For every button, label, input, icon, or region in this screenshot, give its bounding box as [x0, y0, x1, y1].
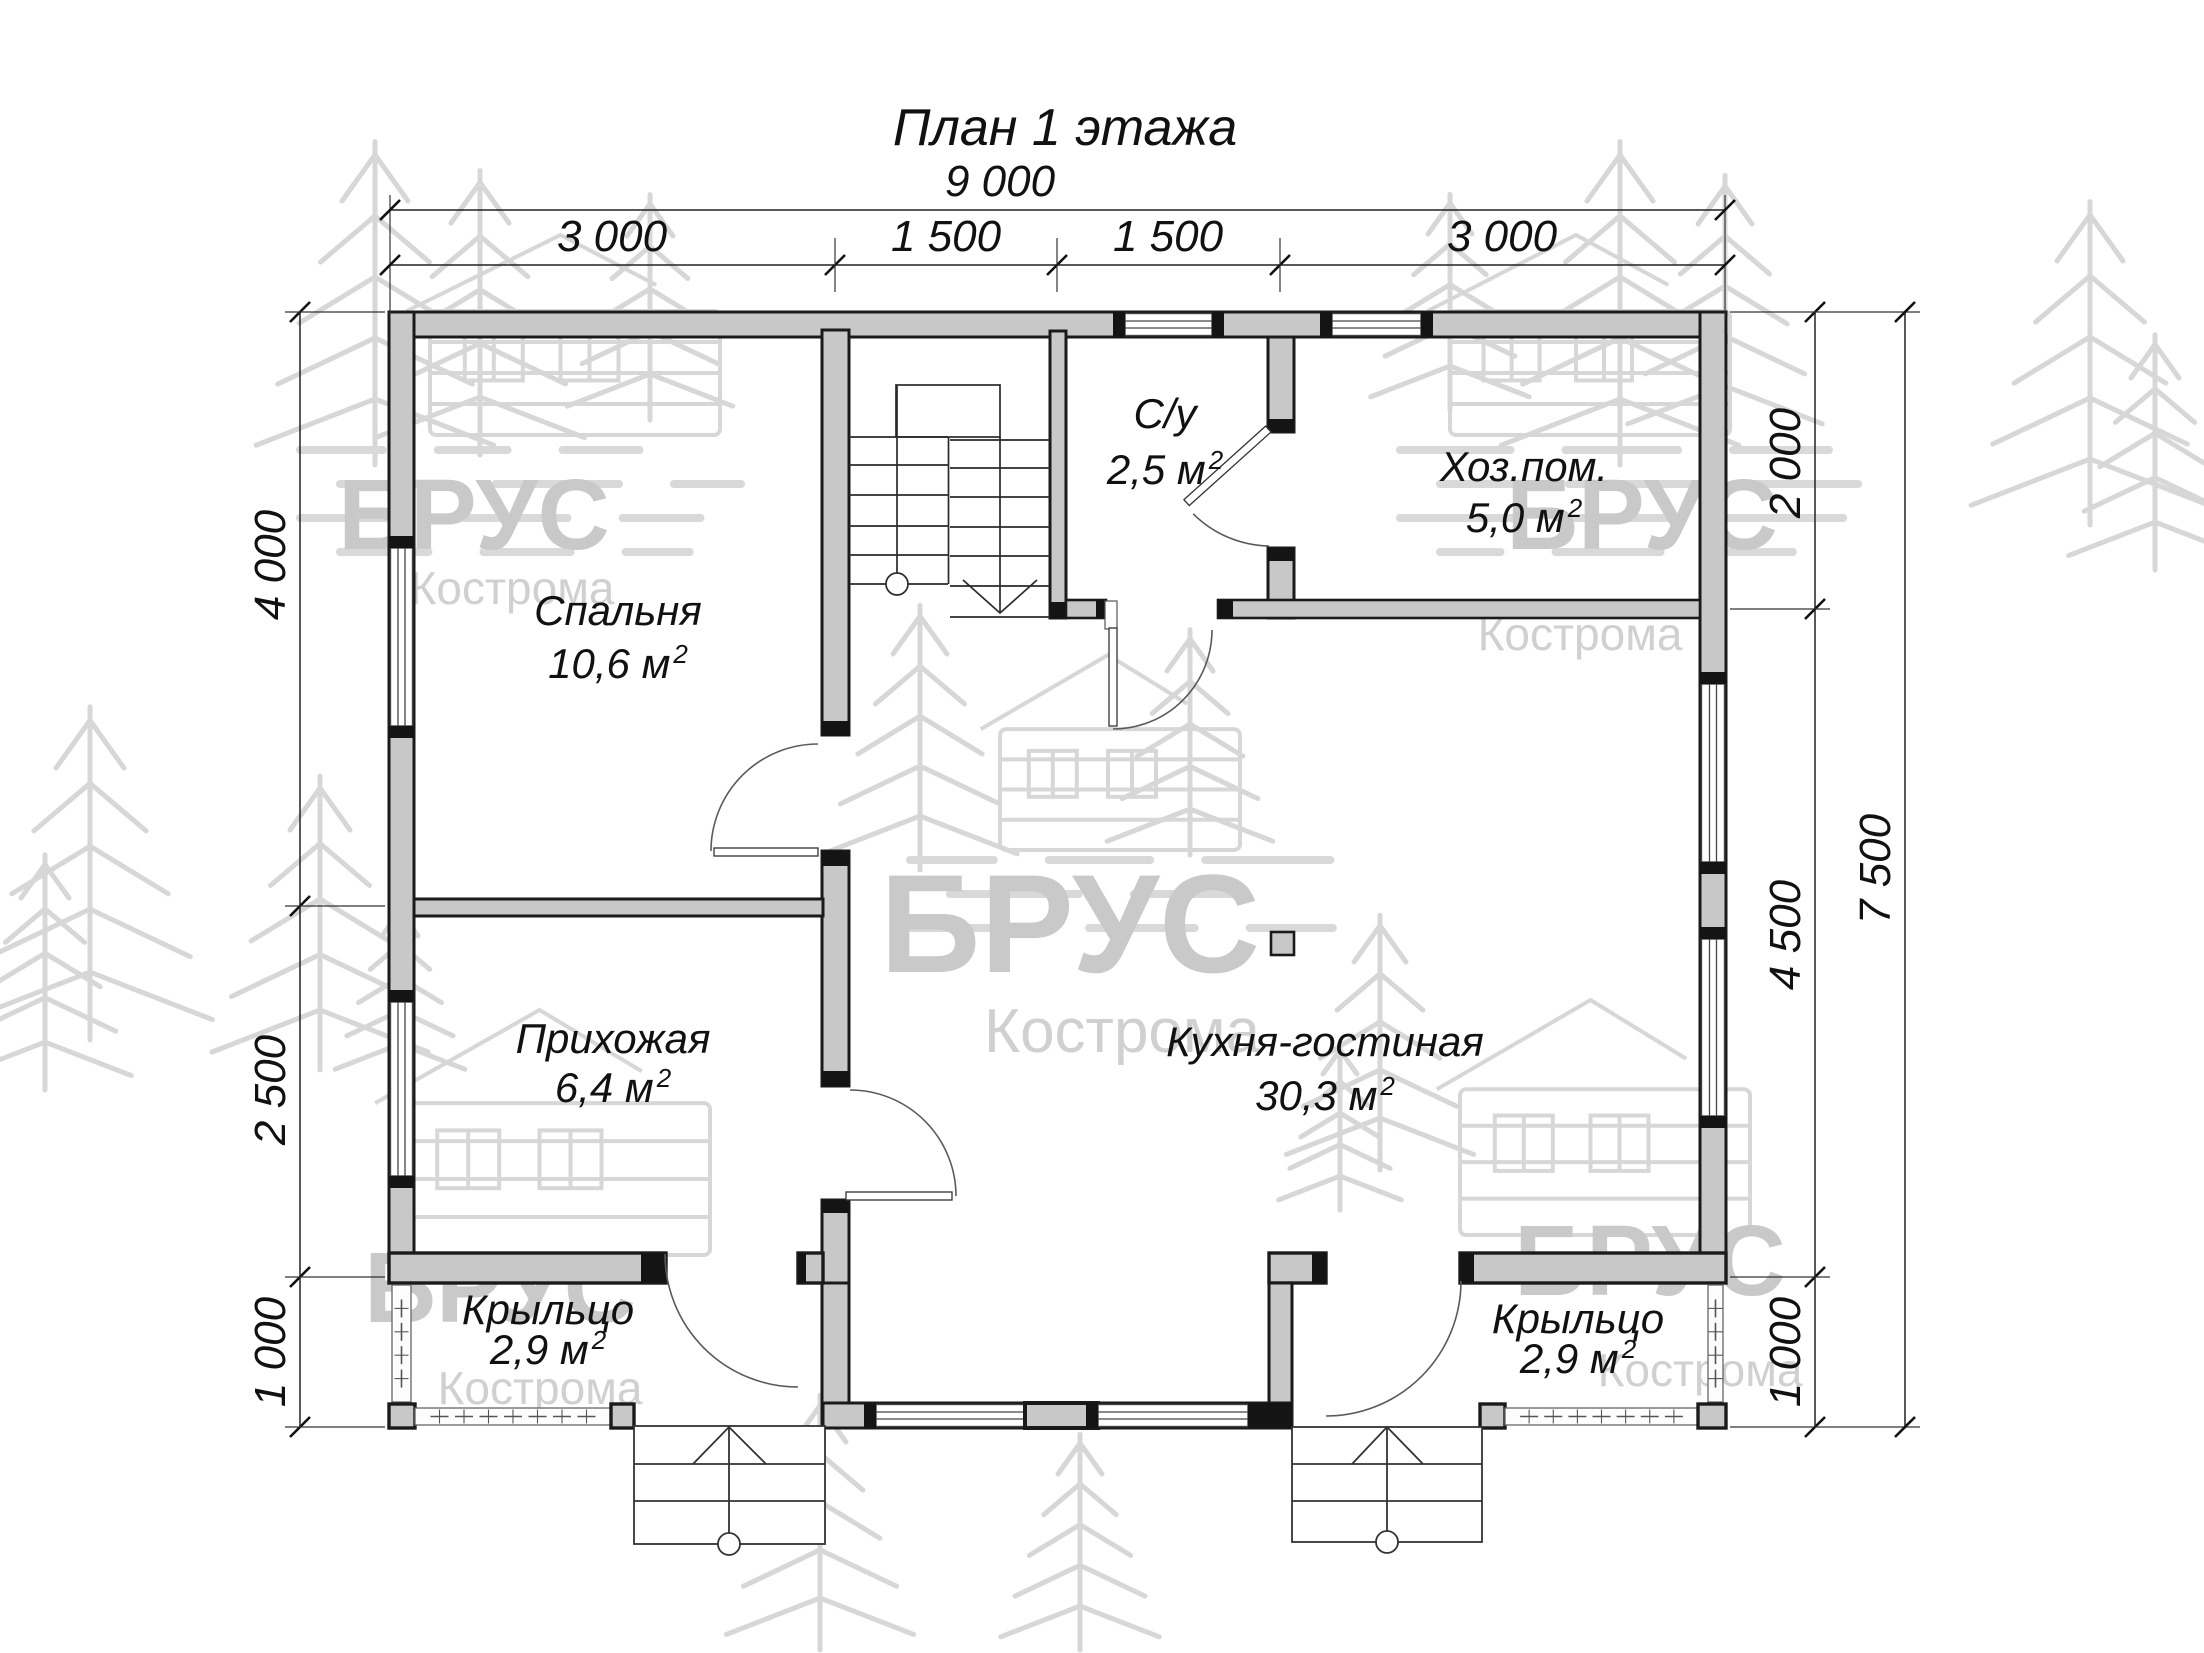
svg-text:10,6 м2: 10,6 м2: [548, 639, 688, 687]
svg-text:2 500: 2 500: [246, 1034, 295, 1146]
svg-text:Кухня-гостиная: Кухня-гостиная: [1166, 1018, 1484, 1065]
svg-text:БРУС: БРУС: [880, 845, 1260, 1002]
svg-text:1 000: 1 000: [246, 1296, 295, 1407]
svg-text:Хоз.пом.: Хоз.пом.: [1439, 443, 1608, 490]
svg-text:4 000: 4 000: [246, 509, 295, 620]
svg-text:1 500: 1 500: [891, 212, 1002, 261]
svg-text:1 500: 1 500: [1113, 212, 1224, 261]
svg-text:Спальня: Спальня: [534, 587, 702, 634]
svg-text:3 000: 3 000: [557, 212, 668, 261]
svg-text:4 500: 4 500: [1761, 879, 1810, 990]
svg-text:Прихожая: Прихожая: [516, 1015, 711, 1062]
svg-text:3 000: 3 000: [1447, 212, 1558, 261]
svg-text:30,3 м2: 30,3 м2: [1255, 1071, 1395, 1119]
svg-text:БРУС: БРУС: [338, 459, 610, 571]
svg-text:План 1 этажа: План 1 этажа: [893, 99, 1237, 157]
svg-text:7 500: 7 500: [1851, 813, 1900, 924]
svg-text:2 000: 2 000: [1761, 407, 1810, 519]
svg-text:С/у: С/у: [1134, 390, 1200, 437]
svg-text:9 000: 9 000: [945, 157, 1056, 206]
svg-text:1 000: 1 000: [1761, 1296, 1810, 1407]
